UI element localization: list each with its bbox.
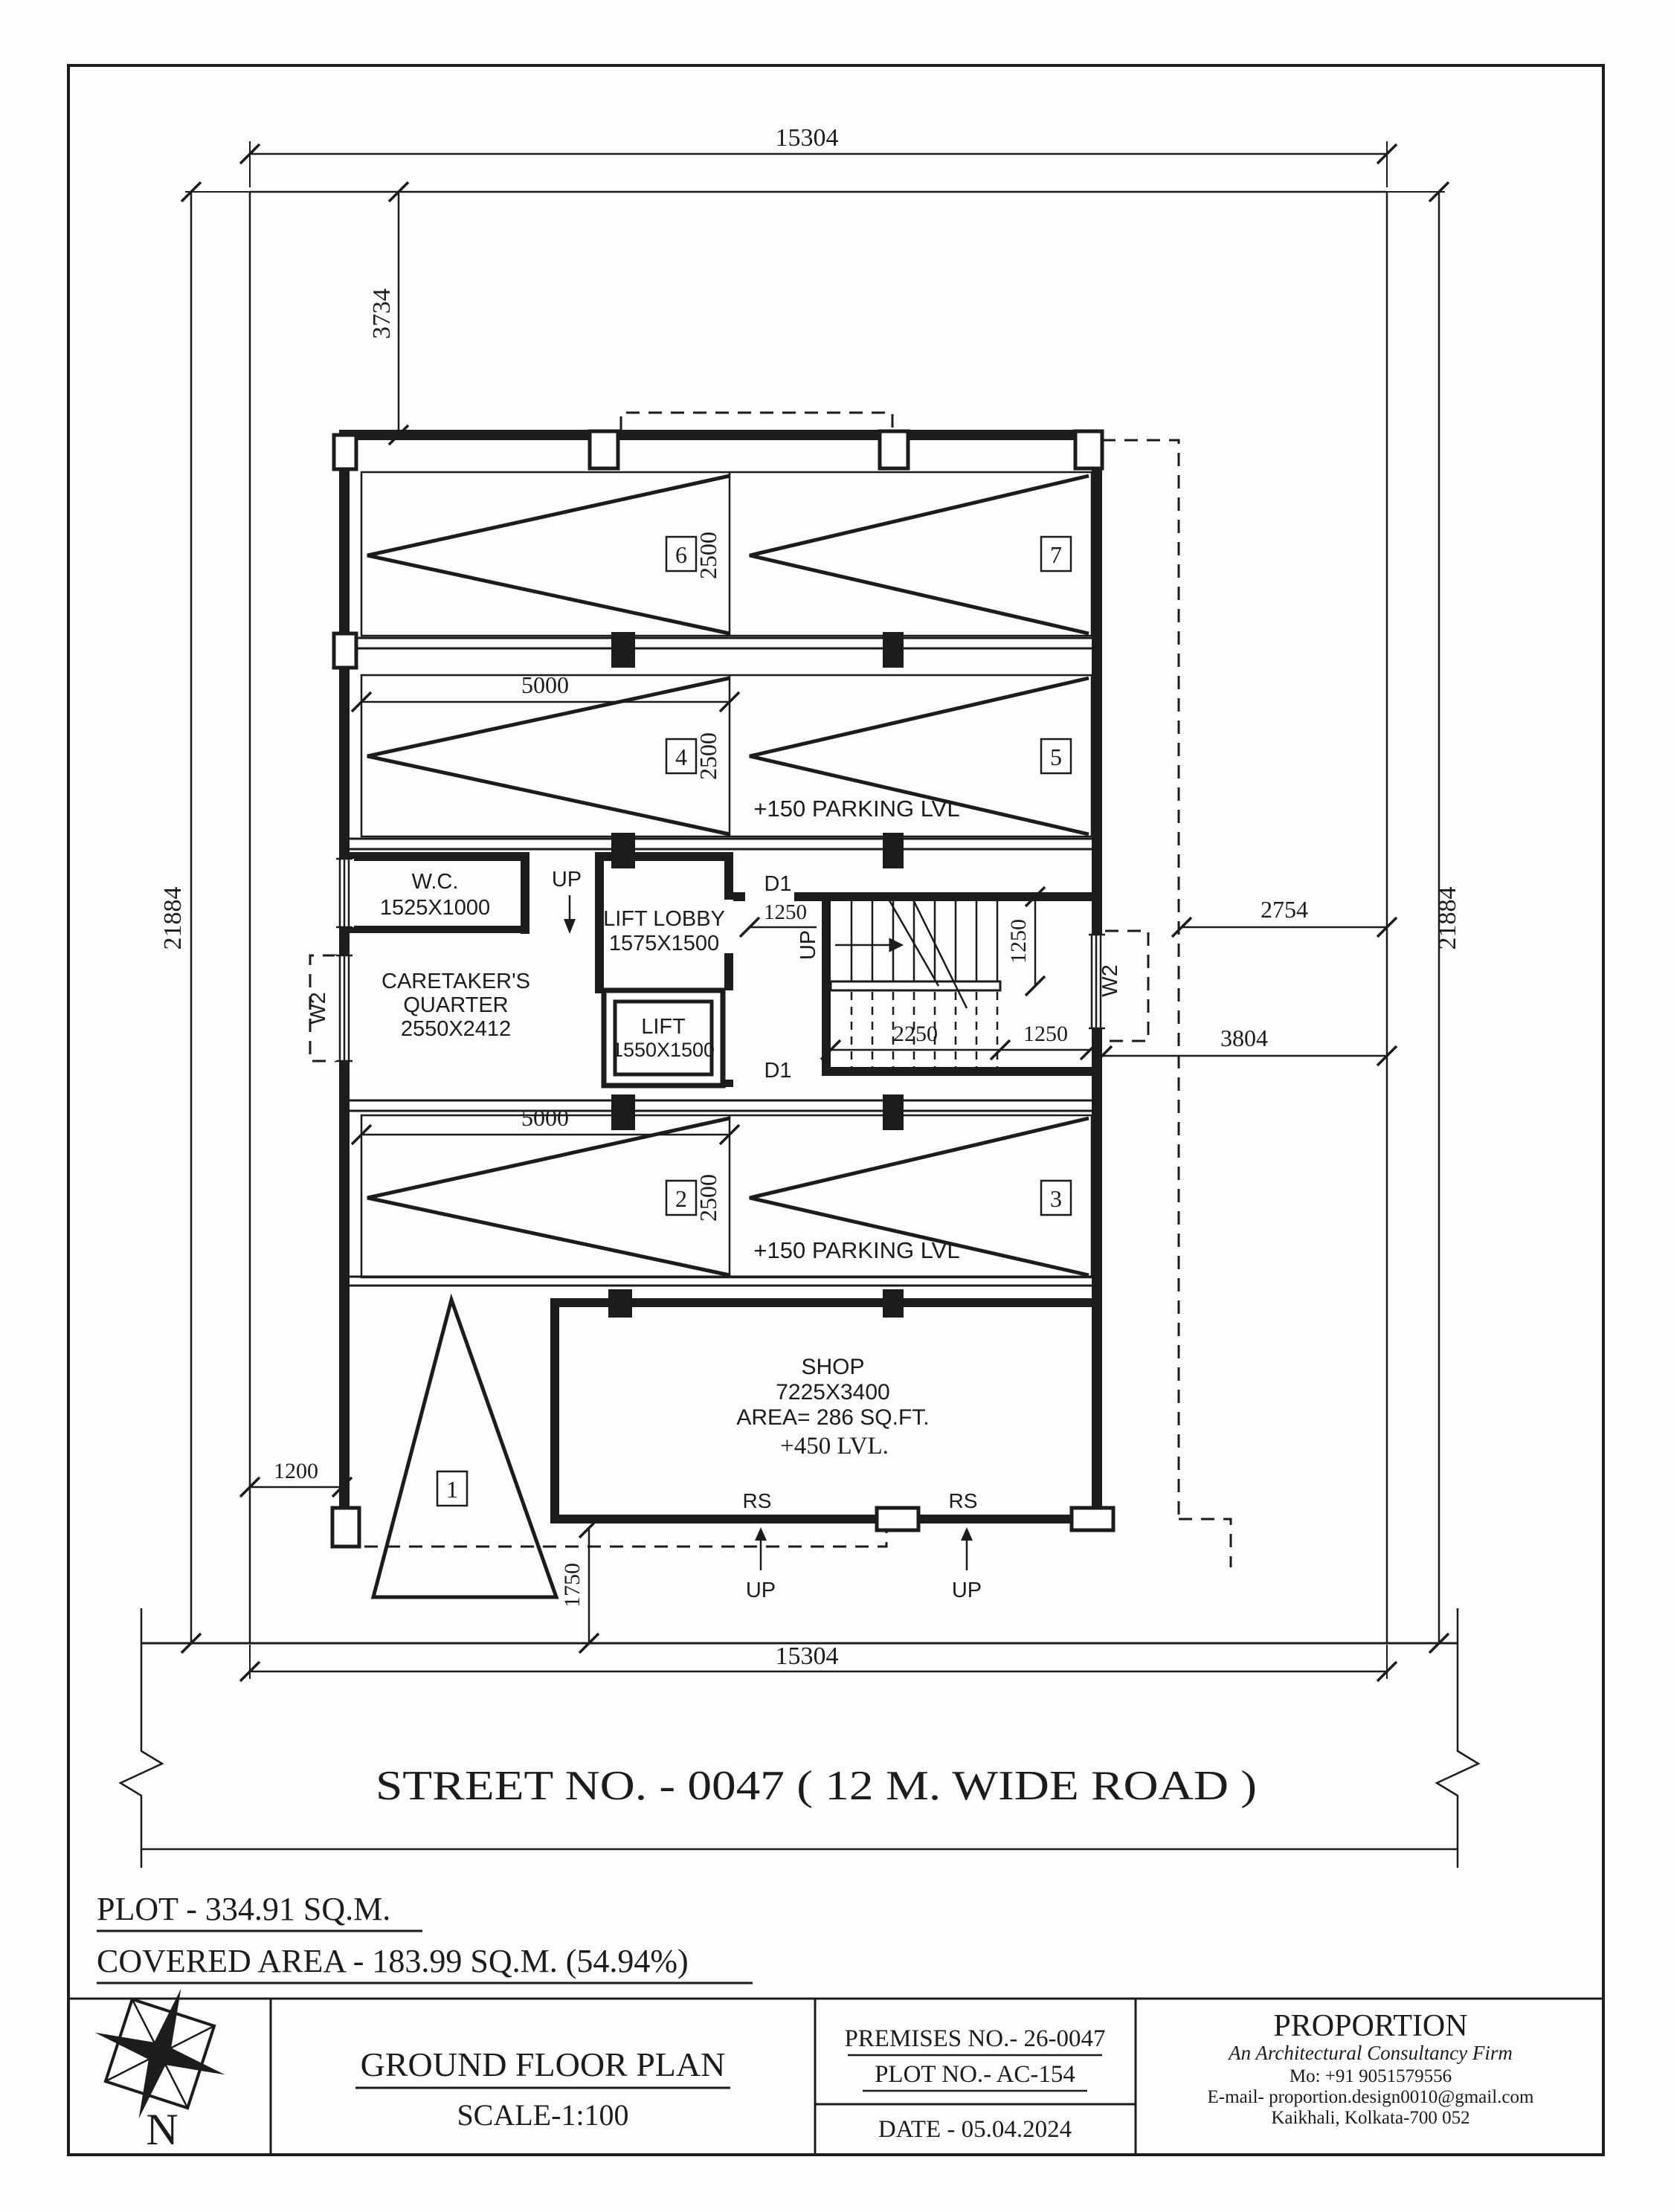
drawing-title: GROUND FLOOR PLAN (361, 2045, 726, 2083)
stall-4-number: 4 (675, 744, 687, 770)
dim-stair-bottom: 2250 1250 (821, 1022, 1100, 1060)
title-block: N GROUND FLOOR PLAN SCALE-1:100 PREMISES… (68, 1967, 1603, 2154)
dim-top: 15304 (240, 124, 1397, 164)
up-label-entry-right: UP (952, 1579, 982, 1602)
plot-no: PLOT NO.- AC-154 (875, 2061, 1075, 2088)
dim-left-21884: 21884 (159, 887, 187, 950)
lift-lobby-name: LIFT LOBBY (603, 907, 725, 931)
premises-no: PREMISES NO.- 26-0047 (844, 2025, 1105, 2052)
stair-up-label: UP (796, 930, 820, 960)
shop-area: AREA= 286 SQ.FT. (736, 1405, 929, 1430)
firm-name: PROPORTION (1273, 2009, 1467, 2043)
lift-lobby-size: 1575X1500 (609, 932, 719, 955)
dim-2500-row45: 2500 (695, 732, 721, 780)
dim-right: 21884 (1429, 182, 1461, 1653)
shop-entry-arrows: UP UP (746, 1527, 982, 1602)
passage-up-arrow (564, 895, 576, 934)
dim-left: 21884 (159, 182, 201, 1653)
firm-address: Kaikhali, Kolkata-700 052 (1271, 2108, 1469, 2128)
w2-label-left: W2 (306, 992, 330, 1025)
lift-size: 1550X1500 (612, 1039, 715, 1061)
lift-name: LIFT (641, 1015, 686, 1039)
firm-tagline: An Architectural Consultancy Firm (1227, 2042, 1513, 2064)
d1-label-top: D1 (764, 872, 791, 896)
plot-area-text: PLOT - 334.91 SQ.M. (97, 1891, 390, 1927)
stall-3-number: 3 (1050, 1185, 1062, 1212)
firm-mobile: Mo: +91 9051579556 (1290, 2066, 1452, 2086)
stair-up-arrowhead (889, 938, 903, 952)
stall-1-number: 1 (446, 1476, 458, 1503)
shop-level: +450 LVL. (780, 1433, 889, 1460)
caretaker-line1: CARETAKER'S (382, 970, 530, 993)
shop-name: SHOP (801, 1355, 864, 1379)
floor-plan-drawing: 15304 3734 21884 21884 (0, 0, 1674, 2212)
dim-1200-text: 1200 (274, 1459, 318, 1483)
covered-area-text: COVERED AREA - 183.99 SQ.M. (54.94%) (97, 1943, 689, 1979)
w2-label-right: W2 (1098, 964, 1122, 997)
shop-size: 7225X3400 (776, 1380, 890, 1405)
shop-labels: SHOP 7225X3400 AREA= 286 SQ.FT. +450 LVL… (736, 1355, 977, 1512)
dim-right-21884: 21884 (1434, 887, 1461, 950)
drawing-sheet: 15304 3734 21884 21884 (0, 0, 1674, 2212)
area-statement: PLOT - 334.91 SQ.M. COVERED AREA - 183.9… (97, 1891, 753, 1983)
stall-7-number: 7 (1050, 541, 1062, 568)
dim-1750-text: 1750 (560, 1563, 585, 1608)
dim-stair-1250b-text: 1250 (1023, 1022, 1068, 1046)
dim-stair-1250-vert: 1250 (1006, 887, 1045, 996)
stair-treads-solid (852, 901, 997, 983)
rs-label-left: RS (743, 1489, 772, 1512)
stall-1-arrow (373, 1300, 556, 1597)
stall-7-arrow (750, 476, 1089, 633)
dim-2754: 2754 (1172, 896, 1397, 937)
drawing-date: DATE - 05.04.2024 (878, 2116, 1072, 2143)
north-letter: N (146, 2105, 178, 2154)
street-break-left (120, 1608, 162, 1868)
street-break-right (1437, 1608, 1478, 1868)
caretaker-line2: QUARTER (403, 993, 508, 1017)
up-label-entry-left: UP (746, 1579, 776, 1602)
dim-2250-text: 2250 (893, 1022, 938, 1046)
stall-2-number: 2 (675, 1185, 687, 1212)
dim-bottom-15304: 15304 (776, 1642, 839, 1670)
stair-handrail (831, 981, 1000, 990)
dim-3734: 3734 (368, 288, 396, 339)
dim-5000-row4: 5000 (352, 671, 739, 712)
stall-5-number: 5 (1050, 744, 1062, 770)
dim-top-15304: 15304 (776, 124, 839, 152)
dim-setback-top: 3734 (368, 182, 408, 445)
stall-6-number: 6 (675, 541, 687, 568)
dim-lobby-1250-text: 1250 (764, 900, 807, 924)
parking-level-note-lower: +150 PARKING LVL (753, 1237, 959, 1263)
dim-2500-row67: 2500 (695, 532, 721, 579)
street-label: STREET NO. - 0047 ( 12 M. WIDE ROAD ) (376, 1763, 1257, 1809)
dim-3804-text: 3804 (1220, 1025, 1268, 1051)
dim-stair-1250v-text: 1250 (1006, 919, 1031, 964)
dim-5000b: 5000 (521, 1104, 569, 1131)
firm-email: E-mail- proportion.design0010@gmail.com (1208, 2087, 1534, 2107)
rs-label-right: RS (949, 1489, 978, 1512)
dim-1750: 1750 (560, 1518, 599, 1653)
dim-2500-row23: 2500 (695, 1174, 721, 1222)
dim-2754-text: 2754 (1261, 896, 1308, 923)
dim-bottom: 15304 (240, 1642, 1397, 1681)
up-label-passage: UP (552, 868, 582, 891)
d1-label-bottom: D1 (764, 1059, 791, 1083)
parking-level-note-upper: +150 PARKING LVL (753, 796, 959, 822)
wc-name: W.C. (412, 870, 459, 894)
dim-1200: 1200 (240, 1459, 352, 1497)
caretaker-size: 2550X2412 (401, 1017, 511, 1041)
dim-3804: 3804 (1092, 1025, 1397, 1065)
drawing-scale: SCALE-1:100 (457, 2098, 628, 2132)
dim-5000a: 5000 (521, 671, 569, 698)
wc-size: 1525X1000 (380, 896, 490, 920)
